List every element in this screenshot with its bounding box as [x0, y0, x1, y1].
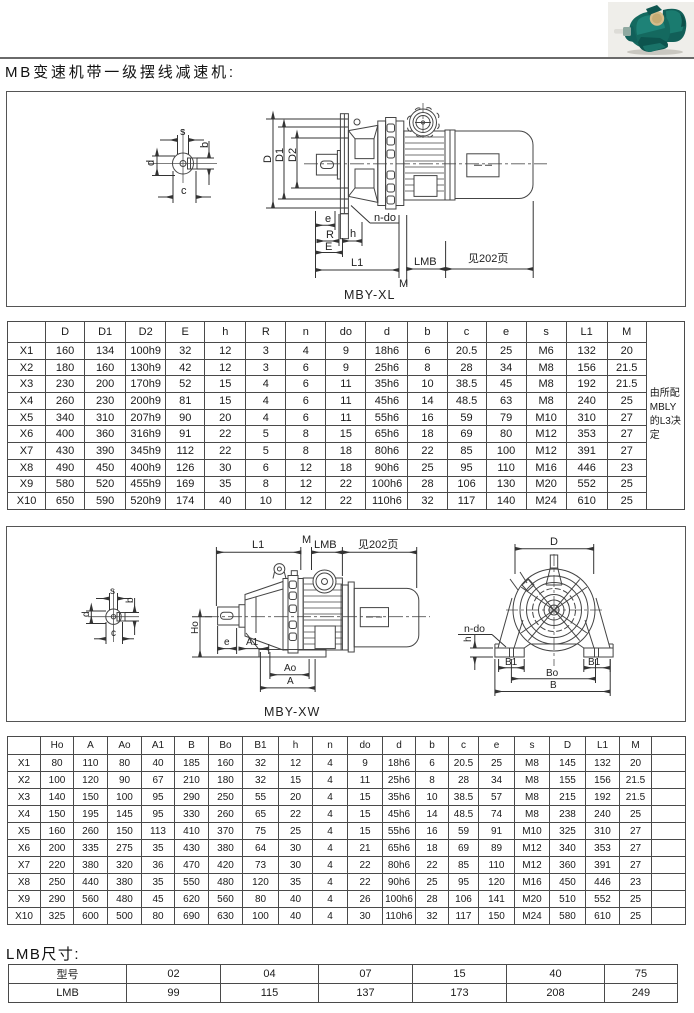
svg-text:h: h — [463, 636, 474, 642]
svg-text:L1: L1 — [252, 539, 264, 551]
svg-text:s: s — [110, 586, 115, 597]
svg-text:c: c — [111, 628, 116, 639]
svg-text:见202页: 见202页 — [358, 539, 398, 551]
svg-text:b: b — [199, 142, 211, 148]
svg-text:c: c — [181, 185, 187, 197]
svg-text:M: M — [302, 534, 311, 546]
svg-text:d: d — [81, 611, 92, 617]
svg-text:n-do: n-do — [374, 212, 396, 224]
svg-text:d: d — [145, 160, 157, 166]
svg-text:E: E — [325, 241, 332, 253]
svg-text:B1: B1 — [588, 657, 601, 668]
svg-text:Ho: Ho — [190, 621, 201, 634]
svg-text:LMB: LMB — [414, 256, 437, 268]
svg-text:D: D — [262, 155, 274, 163]
svg-text:D: D — [550, 536, 558, 548]
svg-text:A1: A1 — [246, 637, 259, 648]
svg-text:LMB: LMB — [314, 539, 337, 551]
svg-text:s: s — [180, 126, 186, 138]
svg-text:B: B — [550, 680, 557, 691]
svg-text:Ao: Ao — [284, 663, 297, 674]
svg-text:e: e — [325, 213, 331, 225]
svg-text:Bo: Bo — [546, 668, 559, 679]
svg-text:见202页: 见202页 — [468, 253, 508, 265]
svg-text:D1: D1 — [274, 148, 286, 162]
svg-text:D2: D2 — [287, 148, 299, 162]
svg-text:MBY-XW: MBY-XW — [264, 705, 320, 719]
svg-text:h: h — [350, 228, 356, 240]
svg-text:M: M — [399, 278, 408, 290]
svg-text:L1: L1 — [351, 257, 363, 269]
svg-text:b: b — [125, 597, 136, 603]
svg-text:n-do: n-do — [464, 623, 485, 635]
svg-text:e: e — [224, 637, 230, 648]
svg-text:A: A — [287, 676, 294, 687]
svg-text:MBY-XL: MBY-XL — [344, 288, 395, 302]
svg-text:R: R — [326, 229, 334, 241]
